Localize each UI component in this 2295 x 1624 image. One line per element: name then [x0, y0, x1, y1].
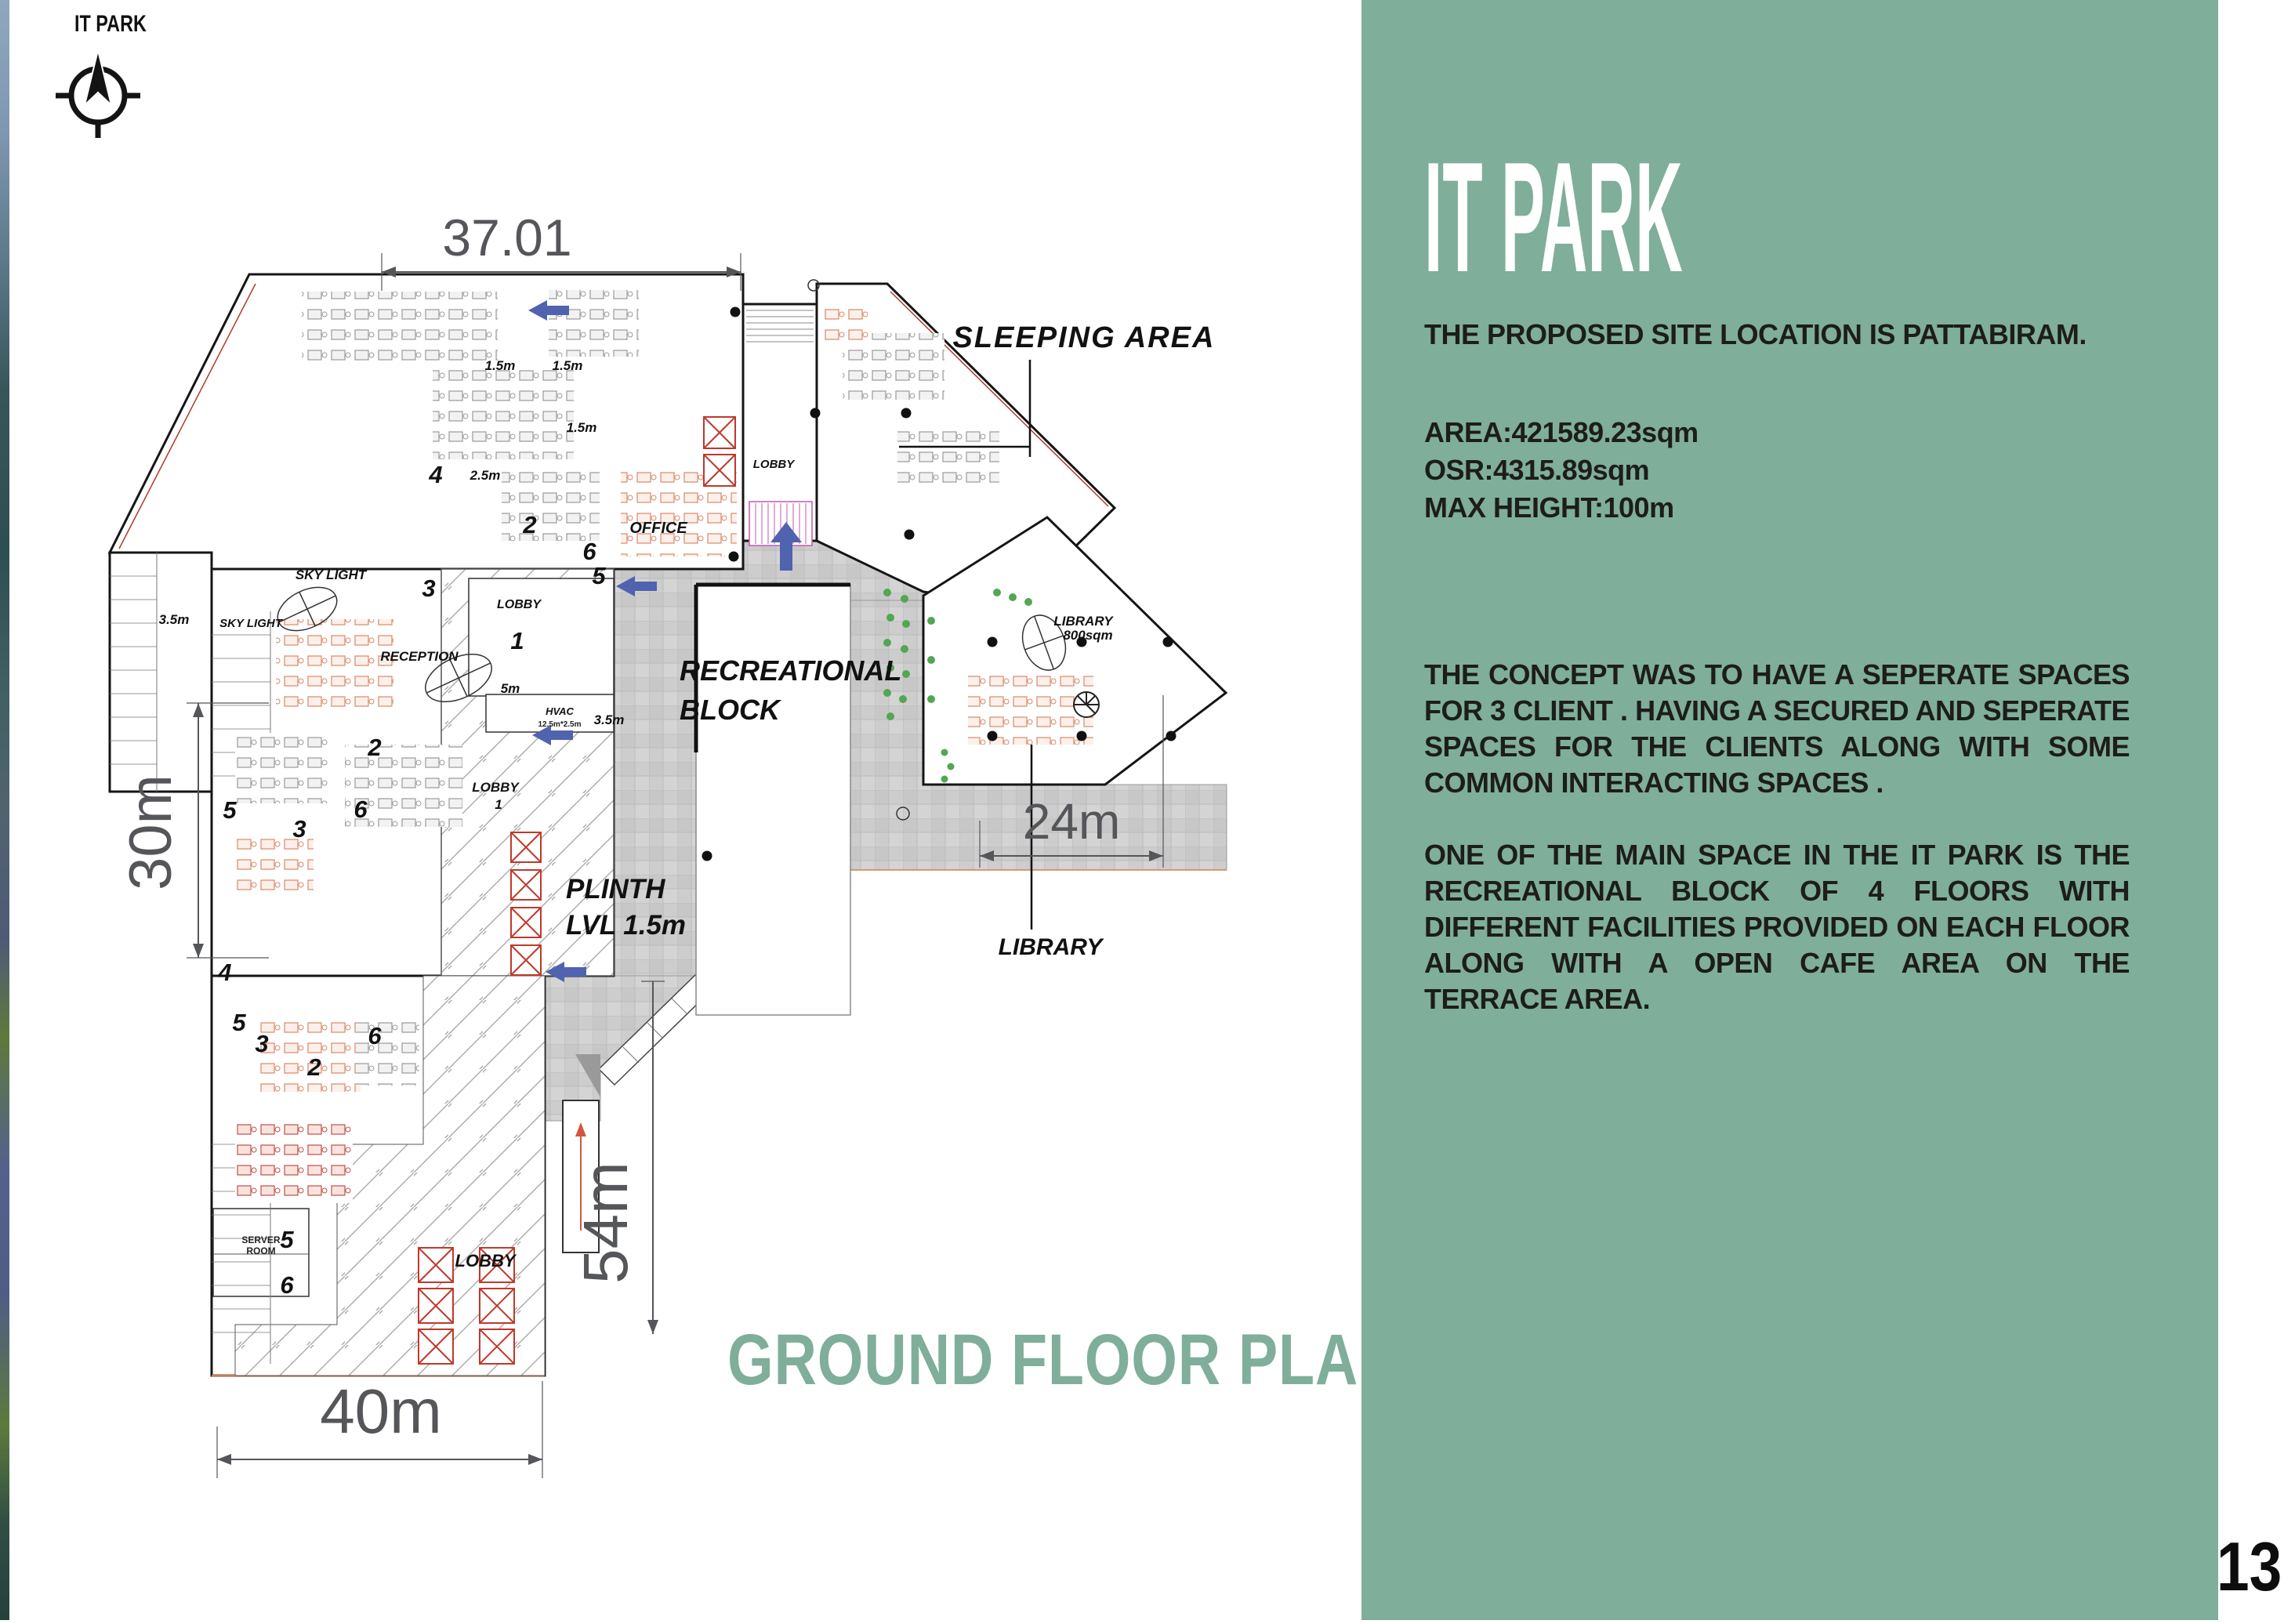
panel-title: IT PARK	[1424, 140, 1683, 296]
page-number: 13	[2217, 1527, 2282, 1607]
size-label: 5m	[501, 681, 520, 696]
size-label: 3.5m	[159, 612, 190, 627]
left-service-strip	[110, 553, 212, 792]
room-number: 3	[255, 1030, 268, 1057]
room-number: 3	[422, 575, 435, 602]
size-label: 3.5m	[594, 712, 625, 727]
stat-max-height: MAX HEIGHT:100m	[1424, 489, 2130, 527]
library-room-label: LIBRARY	[1053, 614, 1114, 629]
reception-label: RECEPTION	[380, 649, 459, 664]
sky-light-label-1: SKY LIGHT	[295, 567, 368, 582]
server-room-label-2: ROOM	[246, 1245, 275, 1256]
spiral-stair-icon	[1074, 692, 1099, 717]
plinth-label-1: PLINTH	[566, 874, 665, 904]
room-number: 3	[292, 815, 306, 843]
room-number: 6	[280, 1271, 294, 1299]
hvac-label: HVAC	[546, 705, 574, 717]
dim-bottom: 40m	[320, 1376, 442, 1446]
dim-plaza: 24m	[1023, 793, 1121, 850]
library-area-label: 800sqm	[1063, 628, 1112, 643]
room-number: 5	[232, 1009, 246, 1036]
size-label: 1.5m	[567, 420, 597, 435]
lobby-top-label: LOBBY	[753, 458, 796, 471]
plinth-label-2: LVL 1.5m	[566, 910, 686, 941]
library-callout: LIBRARY	[999, 934, 1105, 960]
stat-osr: OSR:4315.89sqm	[1424, 451, 2130, 489]
dimension-40: 40m	[217, 1376, 542, 1478]
room-number: 5	[223, 796, 237, 824]
plan-caption: GROUND FLOOR PLAN	[727, 1319, 1402, 1401]
lobby-mid-label: LOBBY	[497, 598, 542, 611]
room-number: 4	[217, 959, 231, 986]
lobby-low-label: LOBBY	[455, 1251, 517, 1271]
floor-plan-area: IT PARK	[0, 0, 1364, 1620]
room-number: 6	[582, 538, 596, 565]
room-number: 5	[592, 562, 606, 589]
room-number: 2	[306, 1053, 321, 1081]
recreational-label-2: BLOCK	[680, 694, 782, 726]
dim-left: 30m	[118, 774, 184, 890]
server-room-label-1: SERVER	[241, 1234, 280, 1245]
site-location-paragraph: THE PROPOSED SITE LOCATION IS PATTABIRAM…	[1424, 317, 2130, 353]
recreational-label-1: RECREATIONAL	[680, 654, 901, 687]
hvac-size-label: 12.5m*2.5m	[538, 720, 581, 729]
room-number: 4	[428, 461, 442, 488]
room-number: 2	[367, 734, 381, 761]
size-label: 1.5m	[485, 358, 516, 373]
dim-top: 37.01	[442, 208, 571, 266]
right-white-strip	[2218, 0, 2295, 1620]
sky-light-label-2: SKY LIGHT	[219, 617, 284, 630]
lobby1-number: 1	[495, 797, 502, 812]
page-title: IT PARK	[74, 11, 147, 38]
info-panel: IT PARK THE PROPOSED SITE LOCATION IS PA…	[1361, 0, 2218, 1620]
site-stats: AREA:421589.23sqm OSR:4315.89sqm MAX HEI…	[1424, 414, 2130, 527]
room-number: 1	[510, 627, 524, 654]
north-compass-icon	[56, 50, 140, 138]
dim-ramp: 54m	[571, 1162, 640, 1284]
office-label: OFFICE	[629, 520, 687, 537]
concept-paragraph: THE CONCEPT WAS TO HAVE A SEPERATE SPACE…	[1424, 657, 2130, 801]
stat-area: AREA:421589.23sqm	[1424, 414, 2130, 451]
room-number: 6	[353, 796, 368, 823]
room-number: 5	[280, 1226, 294, 1253]
size-label: 2.5m	[470, 468, 501, 483]
size-label: 1.5m	[553, 358, 583, 373]
recreational-block	[696, 585, 850, 1015]
lobby1-label: LOBBY	[472, 780, 520, 795]
recreational-paragraph: ONE OF THE MAIN SPACE IN THE IT PARK IS …	[1424, 837, 2130, 1017]
room-number: 6	[368, 1022, 382, 1049]
room-number: 2	[522, 511, 536, 538]
sleeping-area-label: SLEEPING AREA	[953, 321, 1216, 354]
